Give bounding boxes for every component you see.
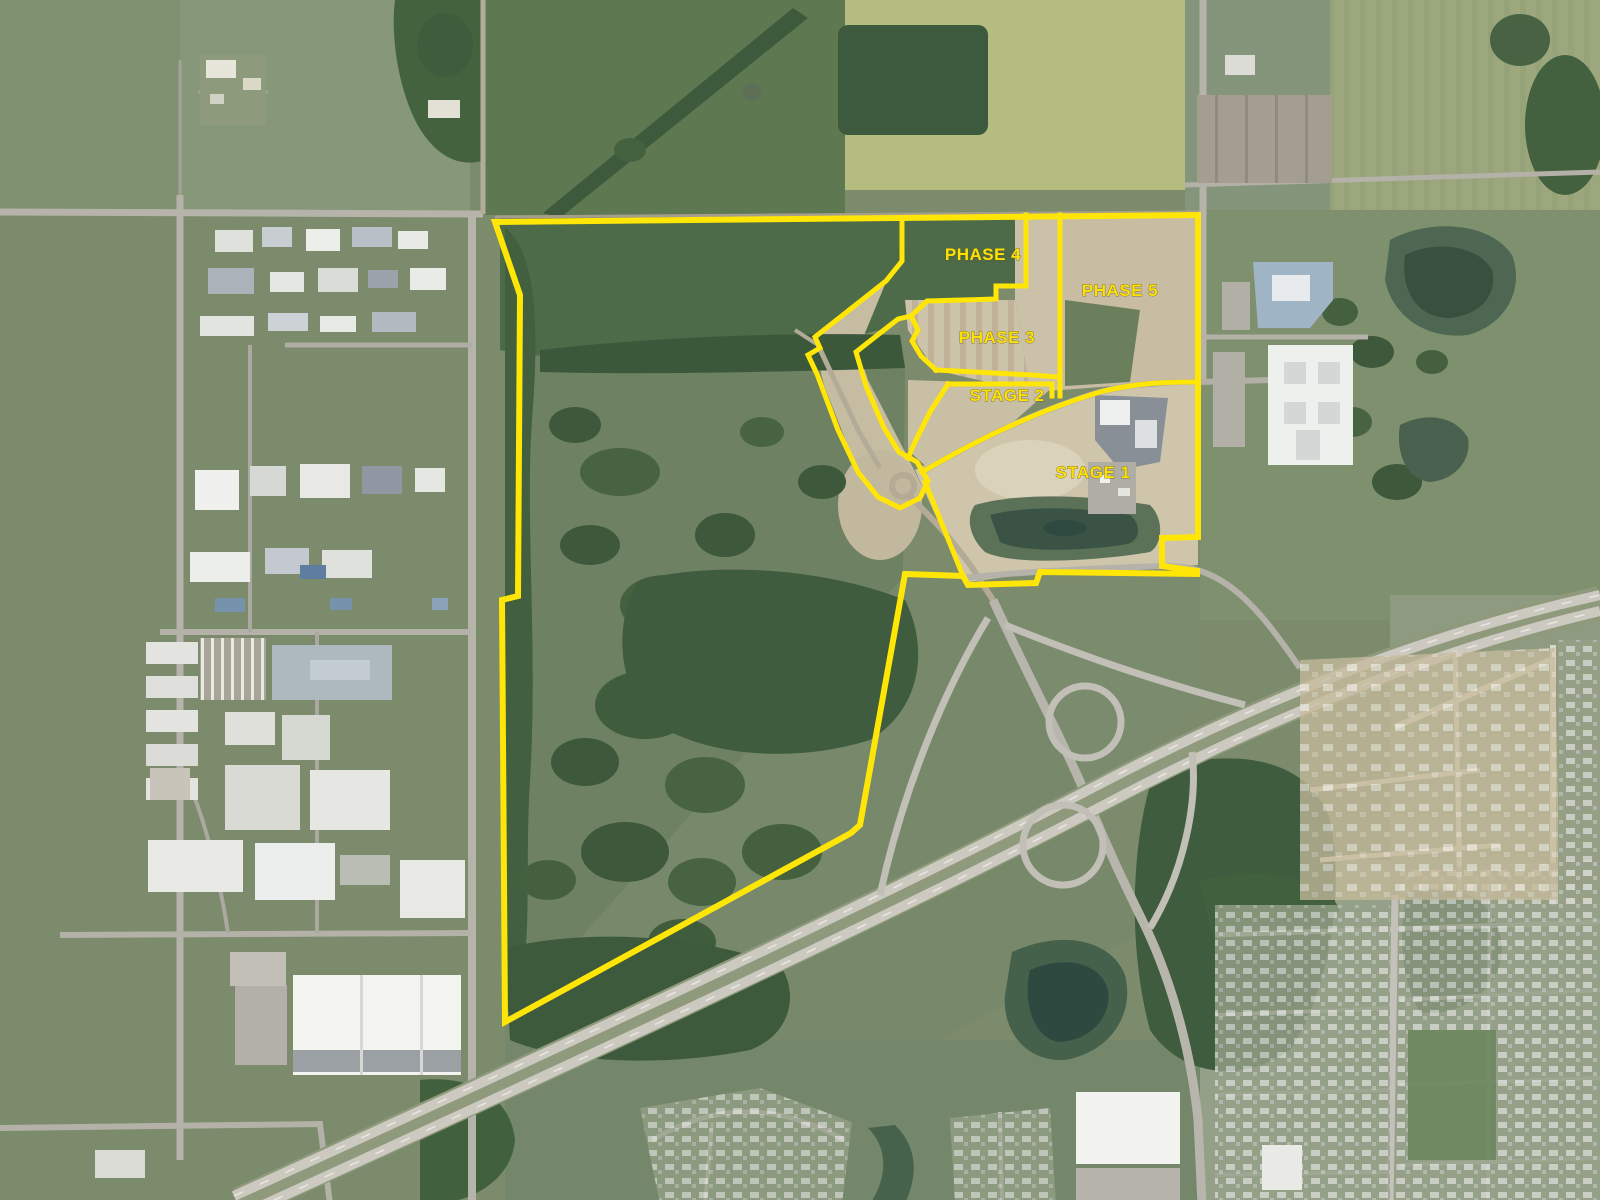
aerial-map: PHASE 4 PHASE 5 PHASE 3 STAGE 2 STAGE 1 [0,0,1600,1200]
satellite-image: PHASE 4 PHASE 5 PHASE 3 STAGE 2 STAGE 1 [0,0,1600,1200]
phase-5-label: PHASE 5 [1082,281,1158,300]
phase-3-label: PHASE 3 [959,328,1035,347]
phase-4-label: PHASE 4 [945,245,1021,264]
stage-2-label: STAGE 2 [970,386,1045,405]
stage-1-label: STAGE 1 [1056,463,1131,482]
